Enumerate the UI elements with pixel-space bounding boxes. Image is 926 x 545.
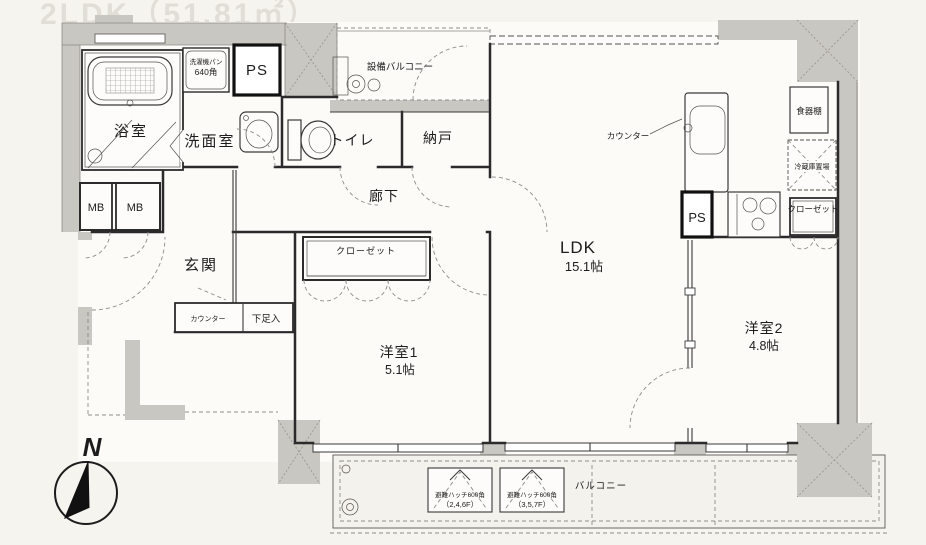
- kitchen-counter-icon: [685, 93, 728, 192]
- wall-entry-jamb-bottom: [78, 307, 92, 345]
- label-bath: 浴室: [114, 123, 148, 140]
- label-ps-kitchen: PS: [688, 210, 706, 225]
- wall-top-right-band: [718, 20, 798, 40]
- label-room2-size: 4.8帖: [749, 338, 779, 353]
- bathtub-grate: [106, 68, 154, 93]
- floorplan-svg: 2LDK（51.81㎡）: [0, 0, 926, 545]
- toilet-tank-icon: [288, 120, 301, 160]
- wall-entry-jamb-top: [78, 232, 92, 240]
- label-shoe-cabinet: 下足入: [252, 314, 281, 325]
- label-entrance-counter: カウンター: [191, 314, 226, 323]
- label-hatch2-line2: （3,5,7F）: [514, 500, 550, 509]
- label-mb-right: MB: [127, 202, 144, 214]
- label-kitchen-counter: カウンター: [607, 131, 650, 141]
- label-closet1: クローゼット: [336, 245, 396, 256]
- label-washroom: 洗面室: [184, 133, 235, 150]
- window-ldk-top: [490, 36, 718, 44]
- label-entrance: 玄関: [184, 257, 218, 274]
- label-room2: 洋室2: [745, 320, 784, 336]
- label-hatch1-line2: （2,4,6F）: [442, 500, 478, 509]
- window-bath: [95, 34, 165, 43]
- closet-room1: [303, 237, 430, 280]
- wall-right-band: [838, 82, 858, 423]
- label-balcony: バルコニー: [575, 481, 627, 492]
- label-hatch1-line1: 避難ハッチ600角: [435, 490, 485, 499]
- label-fridge-space: 冷蔵庫置場: [795, 162, 830, 171]
- floorplan-page: 2LDK（51.81㎡）: [0, 0, 926, 545]
- label-washer-pan-1: 洗濯機パン: [190, 57, 223, 66]
- label-room1: 洋室1: [380, 344, 419, 360]
- label-ldk: LDK: [560, 238, 596, 257]
- wall-porch-horizontal: [125, 405, 185, 420]
- partition-tick-1: [685, 288, 695, 295]
- label-storage: 納戸: [423, 130, 453, 146]
- label-ps-top: PS: [246, 62, 268, 79]
- label-toilet: トイレ: [330, 132, 375, 148]
- bathroom: [82, 50, 185, 170]
- label-hatch2-line1: 避難ハッチ600角: [507, 490, 557, 499]
- wall-service-balcony-band: [330, 100, 490, 112]
- label-washer-pan-2: 640角: [195, 67, 218, 77]
- label-service-balcony: 設備バルコニー: [367, 61, 433, 73]
- label-ldk-size: 15.1帖: [565, 259, 603, 274]
- closet1-outline: [303, 237, 430, 280]
- label-room1-size: 5.1帖: [385, 362, 415, 377]
- label-mb-left: MB: [88, 202, 105, 214]
- washbasin-icon: [240, 112, 278, 152]
- toilet-fixture: [288, 120, 335, 160]
- stove-icon: [728, 192, 780, 237]
- wall-left-band: [62, 23, 80, 232]
- label-dish-shelf: 食器棚: [796, 106, 822, 116]
- partition-tick-2: [685, 341, 695, 348]
- label-corridor: 廊下: [369, 188, 399, 204]
- compass-north-label: N: [83, 432, 103, 462]
- label-closet2: クローゼット: [787, 204, 838, 214]
